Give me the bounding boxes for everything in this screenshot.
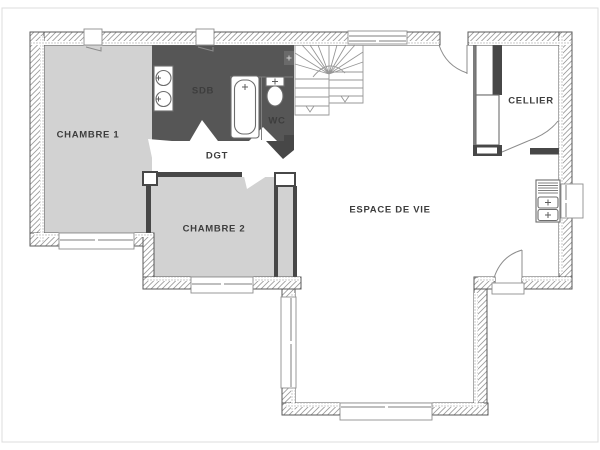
floor-plan-drawing — [0, 0, 600, 450]
label-wc: WC — [268, 116, 285, 127]
entry-door-bottom — [492, 250, 524, 294]
label-cellier: CELLIER — [508, 96, 554, 107]
pier-chambre2-left — [143, 172, 157, 185]
label-chambre1: CHAMBRE 1 — [57, 130, 120, 141]
toilet — [266, 77, 284, 106]
floor-plan-canvas: CHAMBRE 1 SDB WC DGT CHAMBRE 2 ESPACE DE… — [0, 0, 600, 450]
utility-duct — [284, 51, 294, 65]
label-dgt: DGT — [206, 151, 228, 162]
door-threshold — [492, 283, 524, 294]
window-chambre1 — [59, 233, 134, 249]
staircase — [295, 45, 363, 115]
label-sdb: SDB — [192, 86, 214, 97]
window-chambre2 — [191, 277, 253, 293]
entry-door-top — [439, 45, 467, 74]
closet-bottom-slot — [477, 148, 497, 154]
bathtub — [231, 76, 259, 138]
cellier-door-stub — [530, 148, 562, 155]
closet-upper-box — [476, 45, 493, 95]
double-washbasin — [154, 66, 173, 111]
window-espace-left — [281, 297, 296, 388]
wall-espace-left — [293, 186, 297, 277]
window-kitchen — [561, 184, 583, 218]
wc-wall-cap — [284, 135, 294, 150]
chambre2-wardrobe — [278, 186, 293, 277]
closet-lower-box — [476, 95, 499, 145]
wall-chambre2-right — [274, 186, 278, 277]
cellier-door — [502, 121, 558, 152]
kitchen-sink — [536, 180, 560, 222]
bay-window-espace — [340, 403, 432, 420]
pier-chambre2-right — [275, 173, 295, 186]
label-espace-de-vie: ESPACE DE VIE — [349, 205, 430, 216]
label-chambre2: CHAMBRE 2 — [183, 224, 246, 235]
window-top — [348, 31, 407, 44]
closet-side-wall — [493, 45, 502, 95]
wall-chambre2-top — [157, 172, 242, 177]
wall-espace-cellier — [473, 45, 476, 147]
